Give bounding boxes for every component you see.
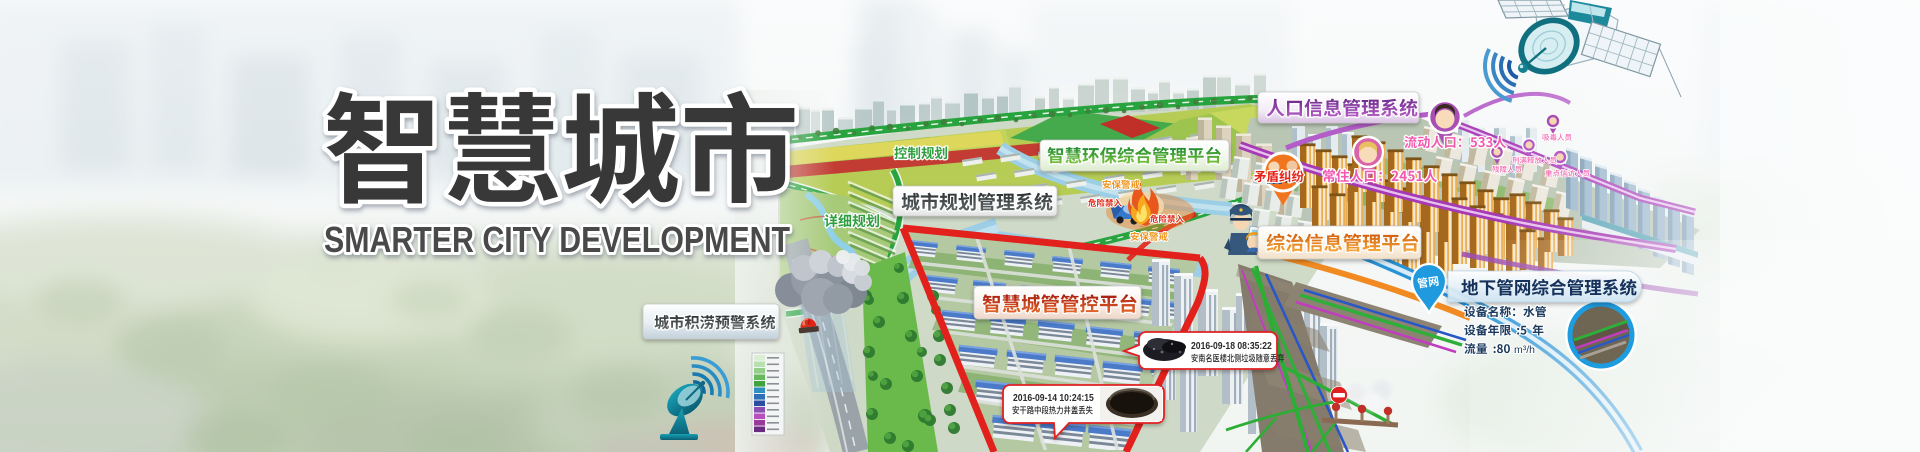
- svg-text:2016-09-14 10:24:15: 2016-09-14 10:24:15: [1013, 392, 1094, 404]
- svg-text:2016-09-18 08:35:22: 2016-09-18 08:35:22: [1191, 340, 1272, 352]
- svg-text:m³/h: m³/h: [1514, 344, 1535, 356]
- svg-text:SMARTER CITY DEVELOPMENT: SMARTER CITY DEVELOPMENT: [324, 221, 791, 261]
